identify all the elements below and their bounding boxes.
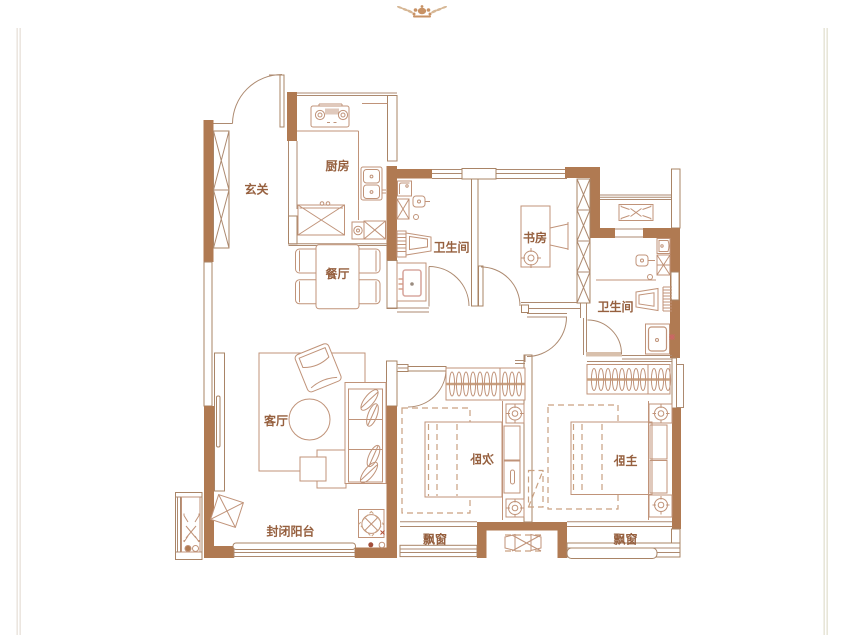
svg-text:飘窗: 飘窗 <box>423 532 447 547</box>
svg-text:餐厅: 餐厅 <box>326 266 350 281</box>
svg-text:书房: 书房 <box>523 230 547 245</box>
svg-text:客厅: 客厅 <box>263 413 288 428</box>
svg-text:飘窗: 飘窗 <box>614 532 638 547</box>
svg-text:厨房: 厨房 <box>326 158 350 173</box>
svg-text:封闭阳台: 封闭阳台 <box>267 524 315 539</box>
svg-text:玄关: 玄关 <box>245 182 269 197</box>
svg-text:次卧: 次卧 <box>470 452 494 467</box>
svg-text:卫生间: 卫生间 <box>598 299 634 314</box>
svg-text:主卧: 主卧 <box>613 453 637 468</box>
svg-text:卫生间: 卫生间 <box>434 240 470 255</box>
